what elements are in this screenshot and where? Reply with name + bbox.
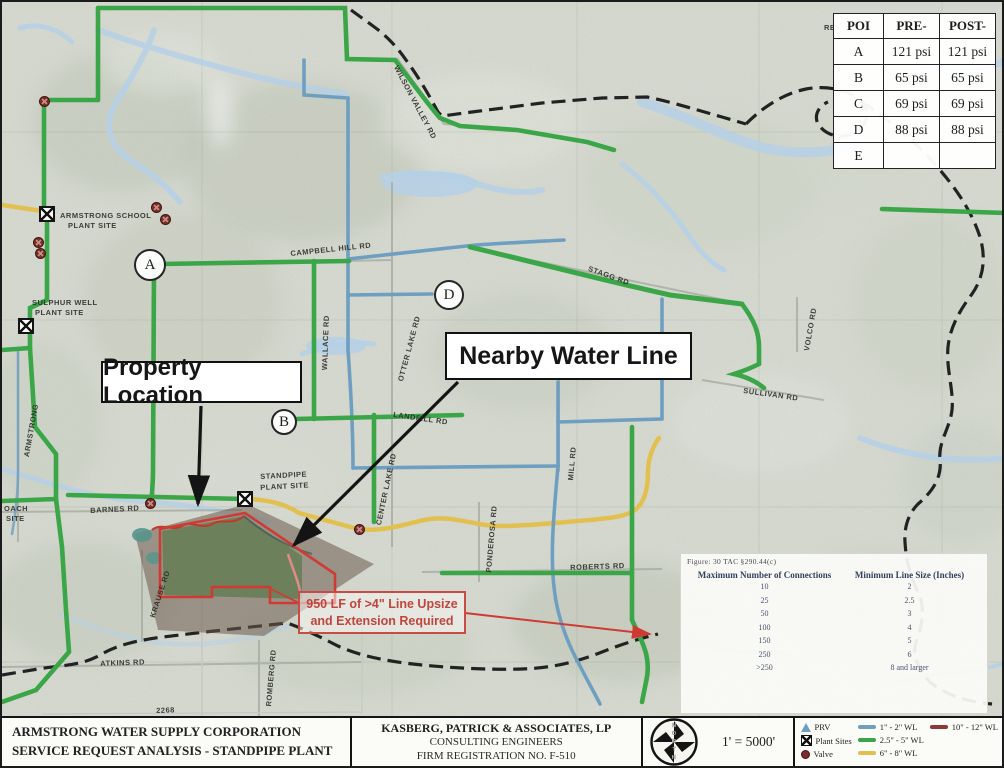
legend-label: Valve (814, 749, 833, 759)
poi-pressure-table: POIPRE-POST- A121 psi121 psiB65 psi65 ps… (833, 13, 996, 169)
connections-col1-header: Maximum Number of Connections (687, 570, 842, 580)
compass-letter: O (671, 731, 676, 737)
legend-line-item: 10" - 12" WL (930, 722, 998, 732)
compass-icon: NORTH (649, 717, 699, 767)
connections-cell: 3 (842, 607, 977, 621)
legend-label: Plant Sites (816, 736, 852, 746)
compass-letter: H (672, 755, 676, 761)
legend-label: 2.5" - 5" WL (880, 735, 924, 745)
connections-row: 503 (687, 607, 981, 621)
project-name: SERVICE REQUEST ANALYSIS - STANDPIPE PLA… (12, 742, 342, 761)
connections-cell: 6 (842, 648, 977, 662)
prv-icon (801, 723, 811, 732)
connections-table: Figure: 30 TAC §290.44(c) Maximum Number… (680, 553, 988, 714)
pressure-cell: A (834, 39, 884, 65)
pressure-cell: 88 psi (940, 117, 996, 143)
line-swatch-icon (858, 751, 876, 755)
poi-marker-a: A (134, 249, 166, 281)
valve-icon (35, 248, 46, 259)
pressure-cell: 121 psi (940, 39, 996, 65)
road-or-site-label: ATKINS RD (100, 657, 145, 668)
line-swatch-icon (858, 738, 876, 742)
pressure-cell: B (834, 65, 884, 91)
road-or-site-label: ROBERTS RD (570, 561, 625, 572)
pressure-table-body: A121 psi121 psiB65 psi65 psiC69 psi69 ps… (834, 39, 996, 169)
road-or-site-label: SULPHUR WELL (32, 298, 98, 307)
road-or-site-label: PLANT SITE (68, 221, 117, 230)
legend-label: 10" - 12" WL (952, 722, 998, 732)
legend-block: NORTH 1' = 5000' PRVPlant SitesValve 1" … (643, 718, 1002, 766)
connections-cell: 250 (687, 648, 842, 662)
scanned-map-page: ARMSTRONG SCHOOLPLANT SITESULPHUR WELLPL… (0, 0, 1004, 768)
legend-symbol-item: PRV (801, 722, 852, 732)
legend-symbol-item: Plant Sites (801, 735, 852, 746)
connections-cell: >250 (687, 661, 842, 675)
legend-line-item: 1" - 2" WL (858, 722, 924, 732)
connections-table-caption: Figure: 30 TAC §290.44(c) (687, 557, 981, 566)
legend: PRVPlant SitesValve 1" - 2" WL2.5" - 5" … (793, 718, 1002, 766)
connections-row: 252.5 (687, 594, 981, 608)
connections-cell: 8 and larger (842, 661, 977, 675)
pressure-row: A121 psi121 psi (834, 39, 996, 65)
pressure-row: E (834, 143, 996, 169)
engineer-role: CONSULTING ENGINEERS (352, 736, 641, 750)
connections-table-header: Maximum Number of Connections Minimum Li… (687, 570, 981, 580)
pressure-cell (884, 143, 940, 169)
legend-line-item: 6" - 8" WL (858, 748, 924, 758)
pressure-row: C69 psi69 psi (834, 91, 996, 117)
connections-cell: 2.5 (842, 594, 977, 608)
title-block: ARMSTRONG WATER SUPPLY CORPORATION SERVI… (2, 716, 1002, 766)
valve-icon (39, 96, 50, 107)
north-arrow: NORTH (643, 717, 705, 767)
legend-symbol-item: Valve (801, 749, 852, 759)
legend-lines-b: 10" - 12" WL (930, 722, 998, 764)
connections-cell: 2 (842, 580, 977, 594)
map-scale: 1' = 5000' (705, 734, 793, 750)
connections-cell: 10 (687, 580, 842, 594)
plant-site-icon (39, 206, 55, 222)
pressure-cell: 121 psi (884, 39, 940, 65)
connections-row: 2506 (687, 648, 981, 662)
legend-line-item: 2.5" - 5" WL (858, 735, 924, 745)
connections-cell: 25 (687, 594, 842, 608)
connections-cell: 4 (842, 621, 977, 635)
connections-cell: 5 (842, 634, 977, 648)
pressure-row: B65 psi65 psi (834, 65, 996, 91)
valve-icon (160, 214, 171, 225)
legend-symbols: PRVPlant SitesValve (801, 722, 852, 764)
pressure-cell: 65 psi (940, 65, 996, 91)
engineer-registration: FIRM REGISTRATION NO. F-510 (352, 750, 641, 764)
plant-site-icon (237, 491, 253, 507)
property-location-callout: Property Location (101, 361, 302, 403)
legend-lines-a: 1" - 2" WL2.5" - 5" WL6" - 8" WL (858, 722, 924, 764)
line-swatch-icon (858, 725, 876, 729)
connections-table-rows: 102252.5503100415052506>2508 and larger (687, 580, 981, 675)
connections-row: 102 (687, 580, 981, 594)
valve-icon (33, 237, 44, 248)
pressure-row: D88 psi88 psi (834, 117, 996, 143)
legend-label: PRV (815, 722, 831, 732)
engineer-block: KASBERG, PATRICK & ASSOCIATES, LP CONSUL… (352, 718, 643, 766)
connections-cell: 100 (687, 621, 842, 635)
map-area: ARMSTRONG SCHOOLPLANT SITESULPHUR WELLPL… (2, 2, 1002, 720)
pressure-col-header: POI (834, 14, 884, 39)
road-or-site-label: SITE (6, 514, 25, 523)
plant-icon (801, 735, 812, 746)
plant-site-icon (18, 318, 34, 334)
line-swatch-icon (930, 725, 948, 729)
upsize-note-line2: and Extension Required (310, 613, 453, 629)
owner-block: ARMSTRONG WATER SUPPLY CORPORATION SERVI… (2, 718, 352, 766)
pressure-cell: 88 psi (884, 117, 940, 143)
valve-icon (801, 750, 810, 759)
valve-icon (151, 202, 162, 213)
pressure-cell: E (834, 143, 884, 169)
nearby-water-line-label: Nearby Water Line (459, 342, 678, 371)
owner-name: ARMSTRONG WATER SUPPLY CORPORATION (12, 723, 342, 742)
pressure-cell (940, 143, 996, 169)
pressure-cell: 65 psi (884, 65, 940, 91)
pressure-col-header: POST- (940, 14, 996, 39)
compass-letter: N (672, 723, 676, 729)
road-or-site-label: PLANT SITE (35, 308, 84, 317)
connections-row: 1505 (687, 634, 981, 648)
road-or-site-label: OACH (4, 504, 28, 513)
upsize-note-line1: 950 LF of >4" Line Upsize (306, 596, 457, 612)
pressure-table-head-row: POIPRE-POST- (834, 14, 996, 39)
valve-icon (354, 524, 365, 535)
road-or-site-label: 2268 (156, 705, 175, 715)
property-location-label: Property Location (103, 354, 300, 410)
connections-cell: 50 (687, 607, 842, 621)
connections-row: >2508 and larger (687, 661, 981, 675)
line-upsize-note: 950 LF of >4" Line Upsize and Extension … (298, 591, 466, 634)
poi-marker-d: D (434, 280, 464, 310)
nearby-water-line-callout: Nearby Water Line (445, 332, 692, 380)
road-or-site-label: WALLACE RD (320, 315, 331, 370)
connections-cell: 150 (687, 634, 842, 648)
pressure-cell: 69 psi (884, 91, 940, 117)
legend-label: 6" - 8" WL (880, 748, 918, 758)
pressure-cell: D (834, 117, 884, 143)
poi-marker-b: B (271, 409, 297, 435)
pressure-cell: C (834, 91, 884, 117)
road-or-site-label: ARMSTRONG SCHOOL (60, 211, 151, 220)
compass-letter: R (672, 739, 676, 745)
pressure-col-header: PRE- (884, 14, 940, 39)
connections-col2-header: Minimum Line Size (Inches) (842, 570, 977, 580)
engineer-name: KASBERG, PATRICK & ASSOCIATES, LP (352, 721, 641, 736)
legend-label: 1" - 2" WL (880, 722, 918, 732)
valve-icon (145, 498, 156, 509)
connections-row: 1004 (687, 621, 981, 635)
pressure-cell: 69 psi (940, 91, 996, 117)
